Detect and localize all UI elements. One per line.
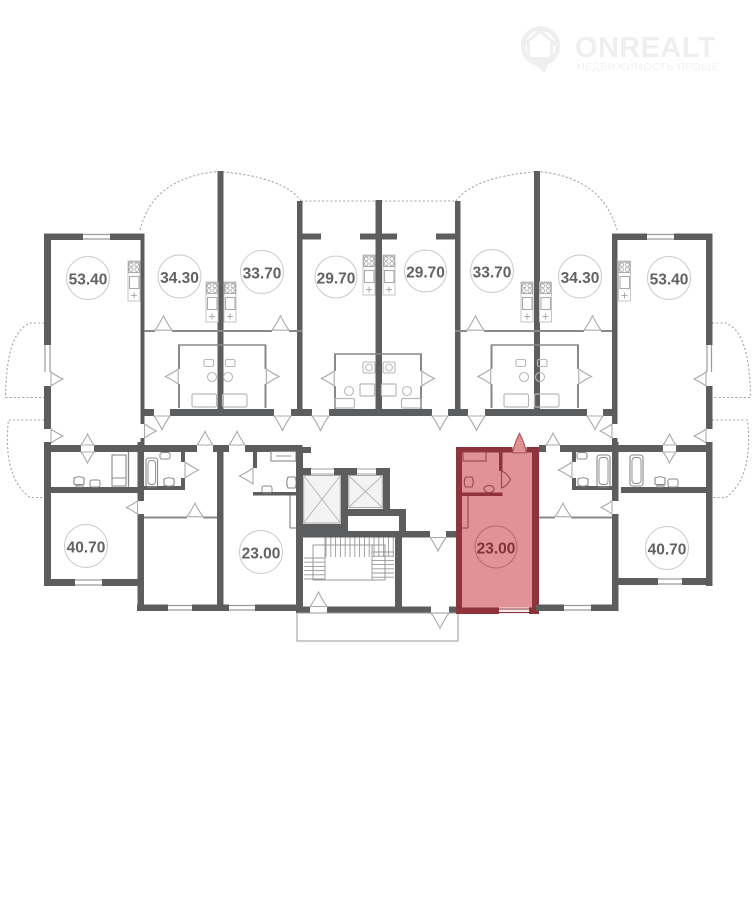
svg-text:53.40: 53.40 bbox=[69, 272, 108, 289]
svg-text:33.70: 33.70 bbox=[473, 265, 512, 282]
svg-text:29.70: 29.70 bbox=[406, 265, 445, 282]
svg-text:53.40: 53.40 bbox=[650, 272, 689, 289]
svg-text:23.00: 23.00 bbox=[477, 541, 516, 558]
svg-text:34.30: 34.30 bbox=[561, 270, 600, 287]
svg-text:ONREALT: ONREALT bbox=[575, 32, 716, 64]
svg-text:40.70: 40.70 bbox=[648, 542, 687, 559]
svg-text:40.70: 40.70 bbox=[67, 540, 106, 557]
svg-text:34.30: 34.30 bbox=[160, 270, 199, 287]
svg-text:29.70: 29.70 bbox=[317, 271, 356, 288]
svg-text:23.00: 23.00 bbox=[242, 546, 281, 563]
svg-text:НЕДВИЖИМОСТЬ ПРОЩЕ: НЕДВИЖИМОСТЬ ПРОЩЕ bbox=[577, 61, 719, 73]
svg-text:33.70: 33.70 bbox=[243, 266, 282, 283]
